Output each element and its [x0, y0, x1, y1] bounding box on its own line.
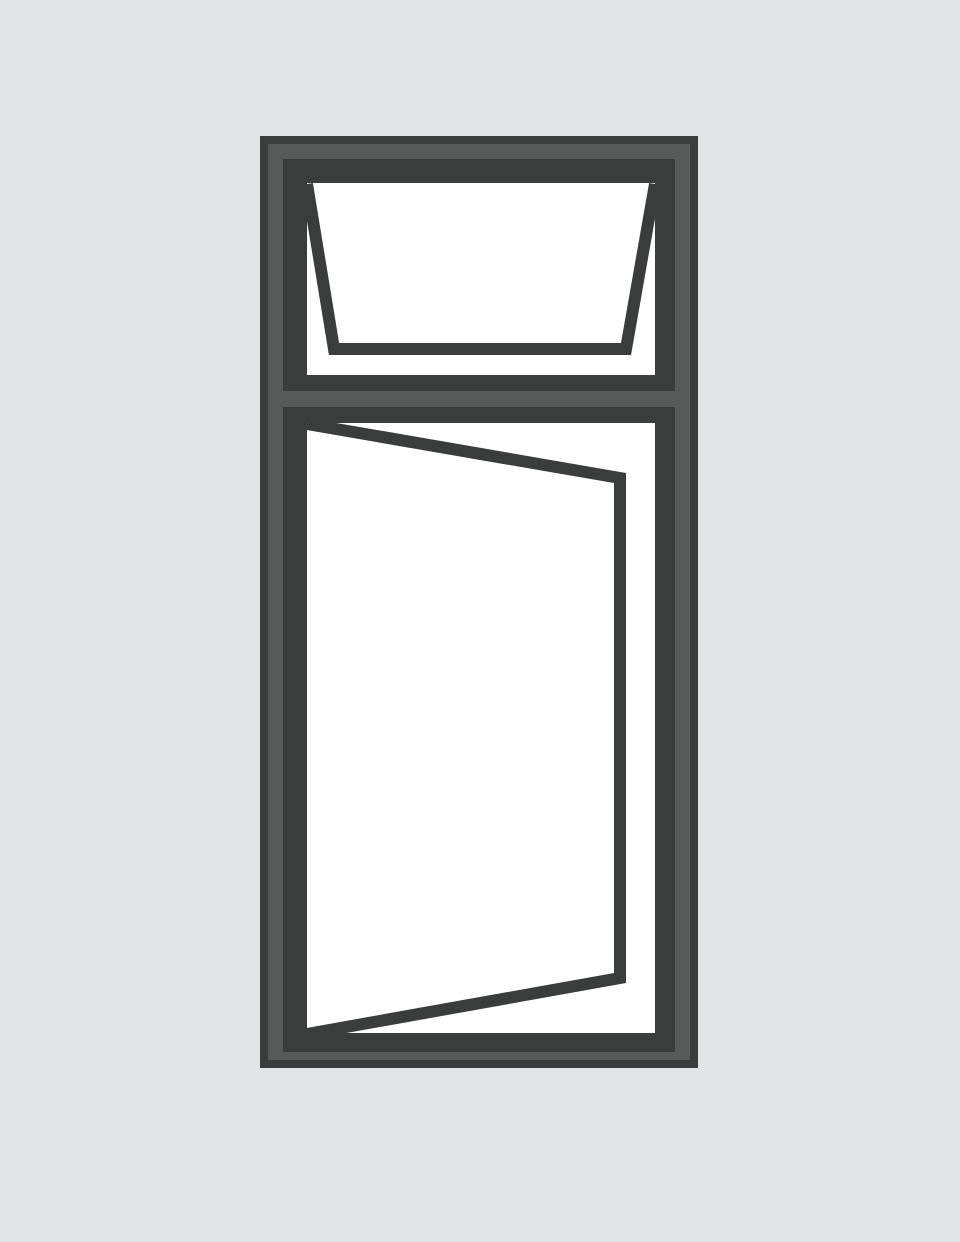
window-style-illustration — [0, 0, 960, 1242]
bottom-pane-glass — [307, 423, 655, 1033]
window-diagram — [0, 0, 960, 1242]
